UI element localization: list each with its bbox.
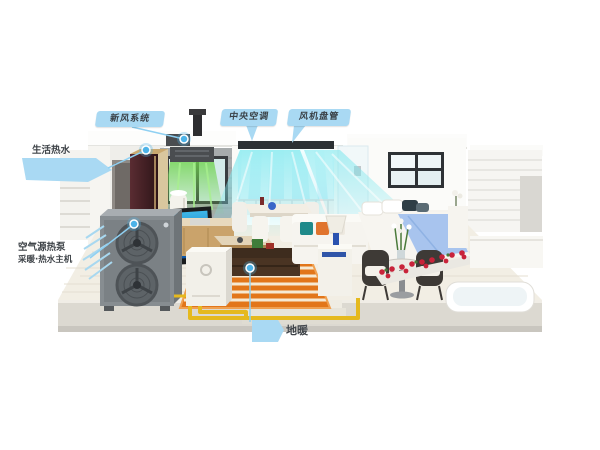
- dining-table: [244, 204, 312, 213]
- callout-floor-heating-label: 地暖: [286, 324, 308, 337]
- callout-heat-pump-line2: 采暖·热水主机: [18, 255, 72, 266]
- callout-heat-pump: 空气源热泵 采暖·热水主机: [18, 242, 72, 266]
- bed-pillow: [362, 202, 383, 215]
- callout-heat-pump-line1: 空气源热泵: [18, 242, 72, 255]
- coffee-table: [224, 258, 300, 276]
- living-room-window-frame: [238, 141, 334, 149]
- marker-indoor-unit: [139, 143, 153, 157]
- callout-floor-heating: 地暖: [286, 324, 308, 339]
- dining-chair: [252, 216, 268, 242]
- marker-fresh-air-unit: [177, 132, 191, 146]
- table-lamp-shade: [326, 216, 346, 233]
- fresh-air-duct-cap: [189, 109, 206, 115]
- house-cutaway-illustration: [0, 0, 600, 450]
- table-centerpiece: [268, 202, 276, 210]
- heat-pump-outdoor-unit: [100, 209, 182, 311]
- dining-chair: [232, 202, 247, 232]
- callout-fan-coil: 风机盘管: [287, 109, 351, 126]
- plant-on-table: [252, 239, 263, 248]
- fresh-air-roof-duct: [193, 112, 202, 136]
- floor-heating-bubble-shape: [252, 320, 284, 342]
- heat-pump-home-diagram: 新风系统 中央空调 风机盘管 生活热水 空气源热泵 采暖·热水主机 地暖: [0, 0, 600, 450]
- callout-central-ac-label: 中央空调: [228, 113, 269, 122]
- callout-central-ac: 中央空调: [220, 109, 278, 126]
- pillow-orange: [316, 222, 329, 235]
- fresh-air-ceiling-unit: [170, 147, 214, 162]
- callout-fan-coil-label: 风机盘管: [298, 113, 339, 122]
- callout-hot-water: 生活热水: [32, 145, 70, 158]
- callout-fresh-air: 新风系统: [95, 111, 165, 127]
- hydro-module-box: [186, 247, 232, 306]
- marker-heat-pump: [127, 217, 141, 231]
- callout-fresh-air-label: 新风系统: [109, 115, 150, 124]
- fan-bottom: [117, 265, 157, 305]
- bed-pillow: [382, 200, 403, 213]
- kitchen-sink: [190, 219, 210, 225]
- pillow-teal: [300, 222, 313, 235]
- marker-floor-heating: [243, 261, 257, 275]
- accent-pillow-dark: [402, 200, 418, 211]
- callout-hot-water-label: 生活热水: [32, 145, 70, 156]
- nightstand: [448, 206, 468, 248]
- table-lamp-base: [333, 233, 339, 245]
